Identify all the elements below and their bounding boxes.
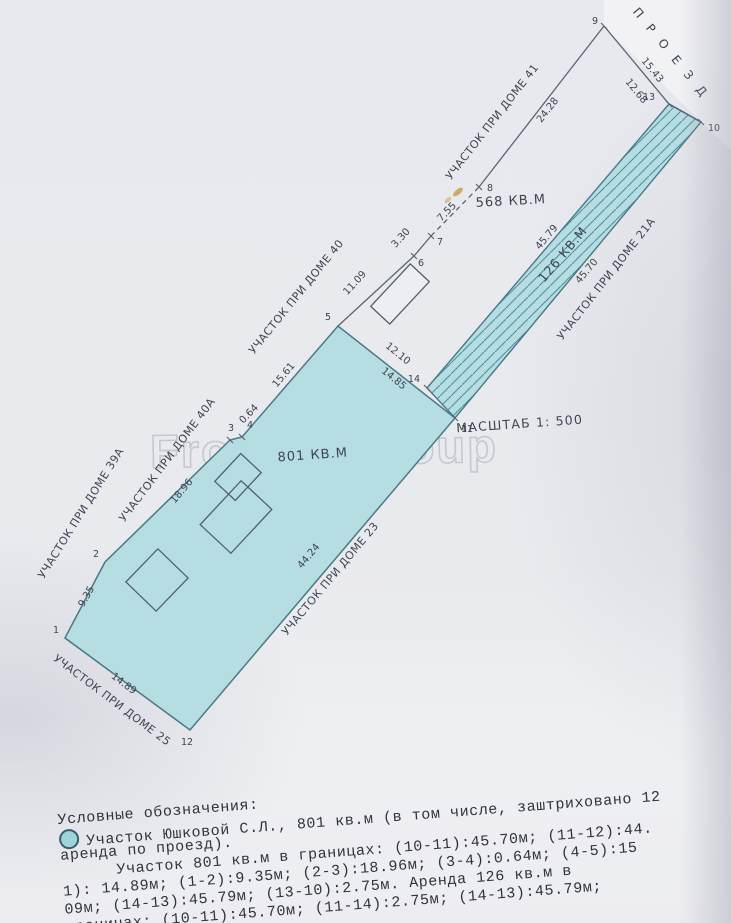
- point-5: 5: [325, 312, 331, 323]
- point-12: 12: [181, 737, 193, 748]
- scanned-survey-plan: Fromax Group: [0, 0, 731, 923]
- scale-label: МАСШТАБ 1: 500: [456, 412, 584, 436]
- point-13: 13: [643, 92, 655, 103]
- point-1: 1: [53, 625, 59, 636]
- point-10: 10: [708, 123, 720, 134]
- point-9: 9: [592, 16, 598, 27]
- point-4: 4: [247, 420, 253, 431]
- point-11: 11: [461, 424, 473, 435]
- dim-11-09: 11.09: [341, 269, 369, 297]
- dim-12-10: 12.10: [383, 341, 412, 368]
- dim-7-55: 7.55: [436, 200, 459, 224]
- area-568-label: 568 КВ.М: [475, 192, 546, 211]
- parcel-41-label: УЧАСТОК ПРИ ДОМЕ 41: [443, 61, 542, 182]
- point-14: 14: [408, 374, 420, 385]
- point-6: 6: [418, 258, 424, 269]
- point-3: 3: [228, 423, 234, 434]
- point-8: 8: [487, 183, 493, 194]
- point-2: 2: [93, 549, 99, 560]
- dim-3-30: 3.30: [390, 226, 413, 250]
- highlight-marks: [444, 186, 465, 204]
- point-7: 7: [437, 237, 443, 248]
